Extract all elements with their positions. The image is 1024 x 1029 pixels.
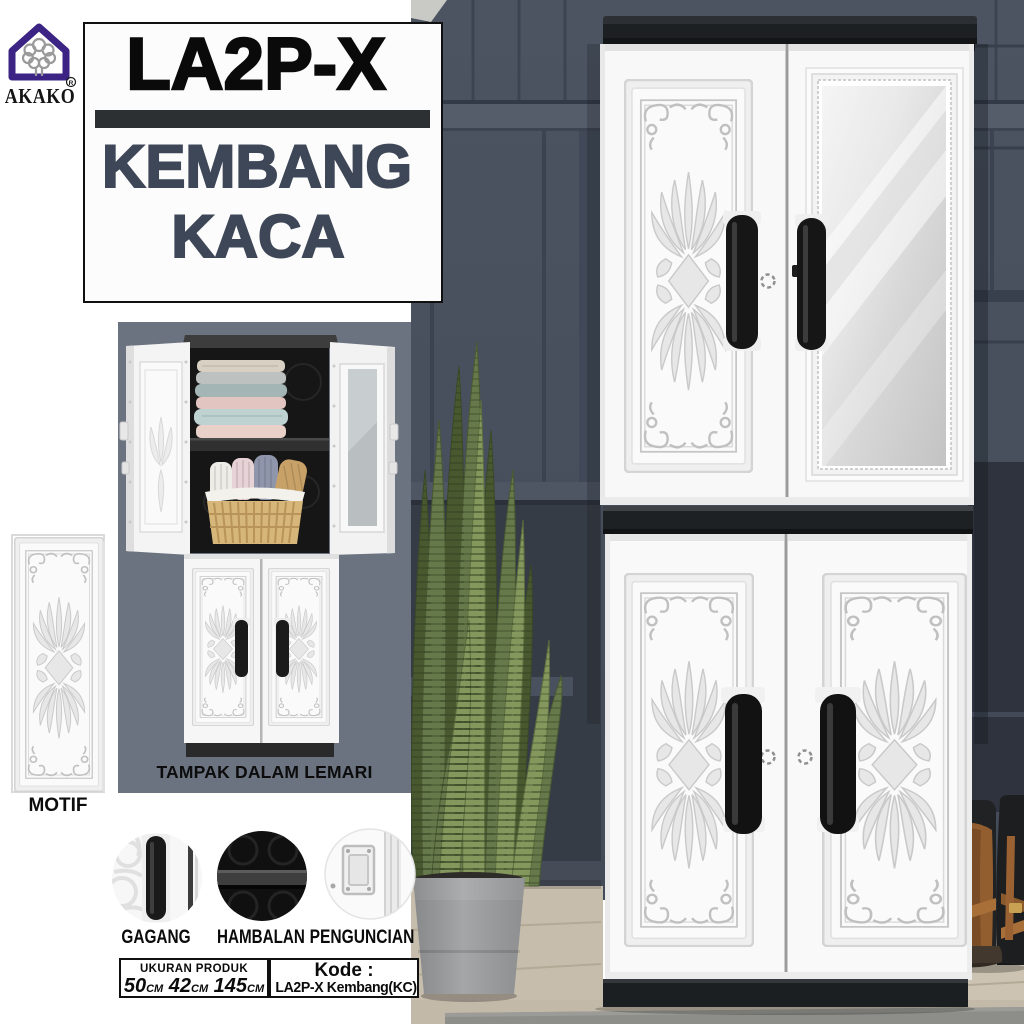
svg-text:AKAKO: AKAKO (5, 86, 75, 108)
